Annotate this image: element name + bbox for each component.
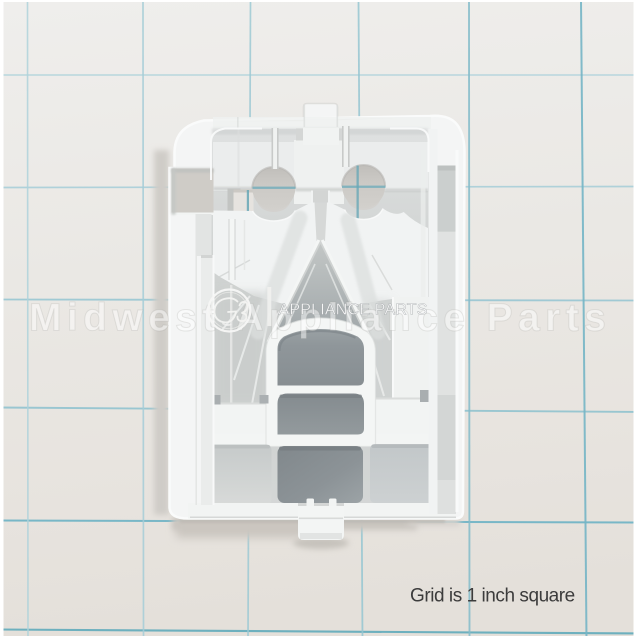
svg-text:Grid is 1 inch square: Grid is 1 inch square — [410, 586, 575, 607]
svg-text:APPLIANCE PARTS: APPLIANCE PARTS — [279, 302, 428, 319]
